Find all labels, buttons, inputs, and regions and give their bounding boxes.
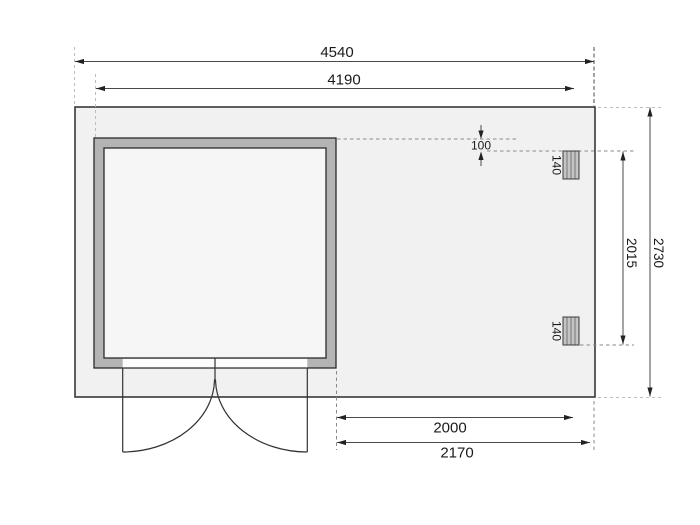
dim-post-span-label: 2015 bbox=[624, 238, 639, 268]
arrow-down-icon bbox=[620, 336, 625, 345]
arrow-up-icon bbox=[647, 108, 652, 117]
arrow-right-icon bbox=[564, 415, 573, 420]
dim-front-offset-label: 100 bbox=[471, 139, 491, 153]
arrow-left-icon bbox=[96, 86, 105, 91]
arrow-left-icon bbox=[337, 440, 346, 445]
dim-total-width-label: 4540 bbox=[320, 44, 353, 61]
support-post-top bbox=[563, 151, 579, 179]
arrow-down-icon bbox=[647, 388, 652, 397]
dim-annex-total-width: 2170 bbox=[337, 440, 590, 462]
arrow-right-icon bbox=[581, 440, 590, 445]
floor-plan-canvas: 4540 4190 100 2015 2730 140 140 2000 bbox=[0, 0, 700, 525]
arrow-right-icon bbox=[565, 86, 574, 91]
dim-post-bottom-width-label: 140 bbox=[550, 321, 564, 341]
dim-post-span: 2015 bbox=[620, 152, 639, 345]
dim-total-depth-label: 2730 bbox=[651, 238, 666, 268]
dim-annex-width-label: 2000 bbox=[433, 420, 466, 437]
arrow-left-icon bbox=[75, 59, 84, 64]
arrow-left-icon bbox=[337, 415, 346, 420]
room-wall-inner bbox=[104, 148, 326, 358]
dim-total-width: 4540 bbox=[75, 44, 594, 64]
arrow-right-icon bbox=[585, 59, 594, 64]
room bbox=[94, 138, 336, 368]
arrow-up-icon bbox=[620, 152, 625, 161]
support-post-bottom bbox=[563, 317, 579, 345]
dim-inner-width: 4190 bbox=[96, 72, 574, 92]
dim-annex-total-width-label: 2170 bbox=[440, 445, 473, 462]
dim-inner-width-label: 4190 bbox=[327, 72, 360, 89]
dim-annex-width: 2000 bbox=[337, 415, 573, 437]
dim-total-depth: 2730 bbox=[647, 108, 666, 397]
dim-post-top-width-label: 140 bbox=[550, 155, 564, 175]
floor-plan-drawing: 4540 4190 100 2015 2730 140 140 2000 bbox=[0, 0, 700, 525]
